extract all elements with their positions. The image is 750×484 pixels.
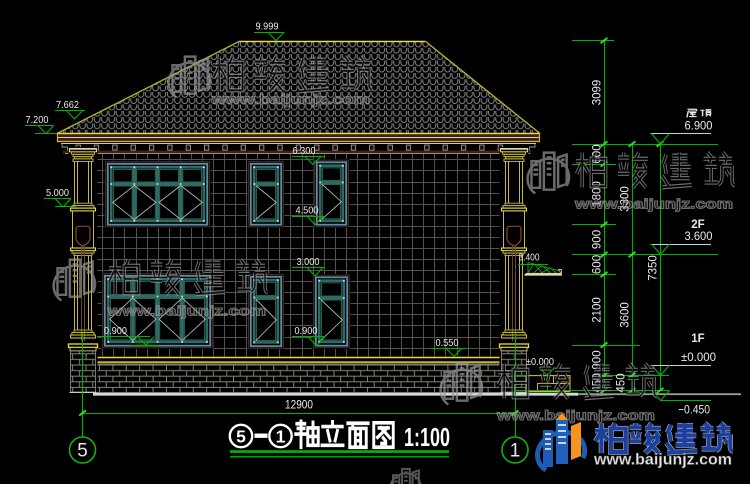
svg-text:0.900: 0.900: [295, 325, 318, 337]
svg-text:3.600: 3.600: [685, 229, 713, 243]
svg-text:6.900: 6.900: [685, 119, 713, 133]
svg-text:1:100: 1:100: [404, 422, 450, 452]
svg-text:5: 5: [77, 441, 88, 462]
svg-text:3099: 3099: [592, 80, 604, 106]
svg-text:±0.000: ±0.000: [681, 350, 716, 364]
svg-text:0.550: 0.550: [436, 337, 459, 349]
svg-text:450: 450: [616, 373, 628, 392]
svg-text:5: 5: [236, 426, 246, 446]
svg-text:4.500: 4.500: [296, 205, 319, 217]
svg-text:2100: 2100: [592, 297, 604, 323]
svg-text:3.400: 3.400: [519, 251, 540, 263]
svg-text:1: 1: [510, 441, 521, 462]
svg-text:7.200: 7.200: [26, 114, 49, 126]
svg-text:www.baijunjz.com: www.baijunjz.com: [496, 407, 655, 423]
svg-text:12900: 12900: [285, 398, 313, 412]
svg-text:3.000: 3.000: [297, 256, 320, 268]
svg-text:www.baijunjz.com: www.baijunjz.com: [211, 91, 370, 107]
svg-text:www.baijunjz.com: www.baijunjz.com: [107, 303, 266, 319]
svg-text:7.662: 7.662: [56, 99, 79, 111]
svg-text:−0.450: −0.450: [678, 403, 710, 417]
svg-text:1F: 1F: [691, 333, 704, 345]
svg-text:7350: 7350: [648, 255, 660, 281]
svg-text:900: 900: [592, 230, 604, 249]
svg-text:9.999: 9.999: [256, 21, 279, 33]
svg-text:www.baijunjz.com: www.baijunjz.com: [593, 452, 732, 469]
svg-text:www.baijunjz.com: www.baijunjz.com: [574, 196, 733, 212]
svg-text:6.300: 6.300: [293, 145, 316, 157]
svg-text:5.000: 5.000: [46, 187, 69, 199]
svg-text:0.900: 0.900: [104, 325, 127, 337]
svg-text:±0.000: ±0.000: [526, 356, 554, 368]
svg-text:1: 1: [276, 426, 286, 446]
svg-text:3600: 3600: [620, 302, 632, 328]
svg-text:600: 600: [592, 255, 604, 274]
